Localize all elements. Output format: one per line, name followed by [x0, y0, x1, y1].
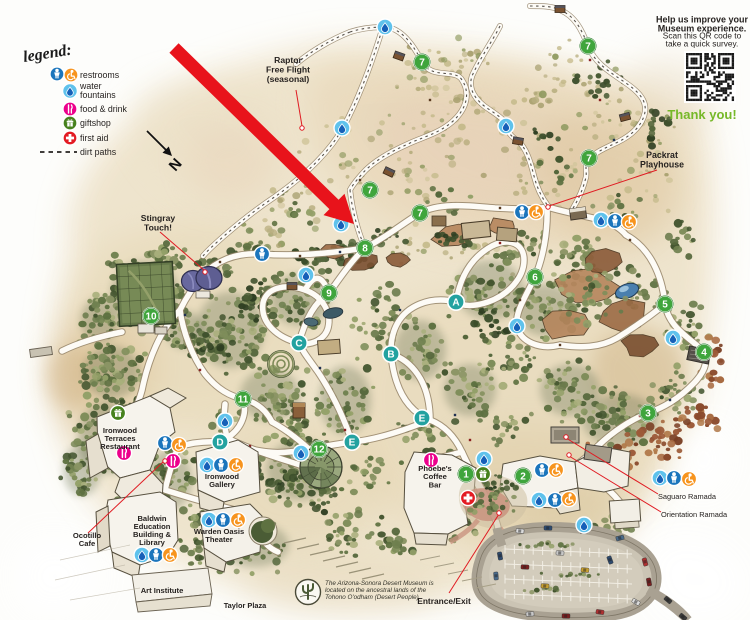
svg-text:4: 4 — [701, 347, 707, 358]
svg-text:7: 7 — [367, 185, 373, 196]
svg-text:food & drink: food & drink — [80, 104, 128, 114]
svg-text:7: 7 — [419, 57, 425, 68]
svg-text:E: E — [419, 413, 426, 424]
svg-text:12: 12 — [313, 444, 325, 455]
svg-text:7: 7 — [585, 41, 591, 52]
svg-text:Entrance/Exit: Entrance/Exit — [417, 596, 471, 606]
svg-text:B: B — [387, 349, 394, 360]
svg-text:IronwoodGallery: IronwoodGallery — [205, 472, 240, 489]
svg-text:8: 8 — [362, 243, 368, 254]
svg-text:11: 11 — [238, 394, 249, 405]
svg-text:Orientation Ramada: Orientation Ramada — [661, 510, 728, 519]
svg-text:fountains: fountains — [80, 90, 116, 100]
svg-text:10: 10 — [145, 311, 157, 322]
svg-text:Taylor Plaza: Taylor Plaza — [224, 601, 267, 610]
svg-text:Art Institute: Art Institute — [141, 586, 184, 595]
svg-text:IronwoodTerracesRestaurant: IronwoodTerracesRestaurant — [100, 426, 140, 451]
svg-text:9: 9 — [326, 288, 332, 299]
svg-text:A: A — [452, 297, 459, 308]
svg-text:StingrayTouch!: StingrayTouch! — [141, 213, 176, 232]
svg-text:PackratPlayhouse: PackratPlayhouse — [640, 150, 684, 169]
svg-text:7: 7 — [586, 153, 592, 164]
svg-text:3: 3 — [645, 408, 651, 419]
svg-text:E: E — [349, 437, 356, 448]
svg-text:7: 7 — [417, 208, 423, 219]
svg-text:Scan this QR code totake a qui: Scan this QR code totake a quick survey. — [663, 31, 742, 49]
svg-text:Thank you!: Thank you! — [667, 107, 736, 122]
svg-text:2: 2 — [520, 471, 526, 482]
svg-text:The Arizona-Sonora Desert Muse: The Arizona-Sonora Desert Museum islocat… — [325, 580, 434, 601]
svg-text:6: 6 — [532, 272, 538, 283]
svg-text:first aid: first aid — [80, 133, 108, 143]
svg-text:5: 5 — [662, 299, 668, 310]
svg-text:D: D — [216, 437, 223, 448]
svg-text:restrooms: restrooms — [80, 70, 120, 80]
svg-text:C: C — [295, 338, 302, 349]
svg-text:dirt paths: dirt paths — [80, 147, 117, 157]
svg-text:1: 1 — [463, 469, 469, 480]
svg-text:giftshop: giftshop — [80, 118, 111, 128]
svg-text:Saguaro Ramada: Saguaro Ramada — [658, 492, 717, 501]
